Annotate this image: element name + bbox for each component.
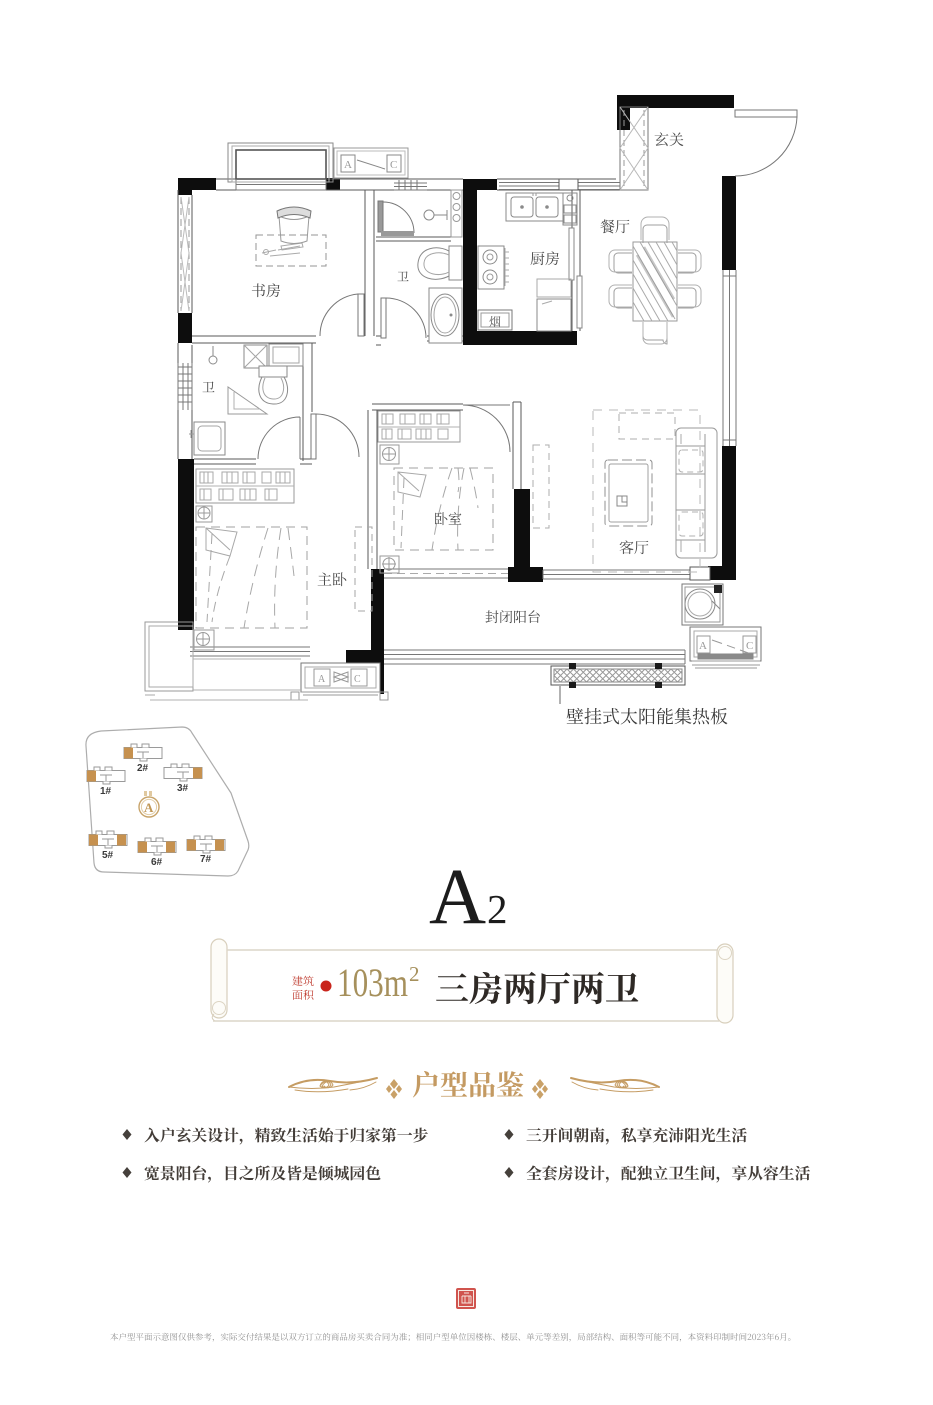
svg-text:A: A — [144, 800, 154, 815]
svg-text:2#: 2# — [137, 763, 149, 774]
svg-text:3#: 3# — [177, 783, 189, 794]
svg-text:5#: 5# — [102, 850, 114, 861]
svg-text:A: A — [344, 159, 352, 171]
svg-text:A: A — [318, 674, 326, 685]
svg-text:C: C — [746, 640, 753, 652]
svg-text:C: C — [354, 674, 361, 685]
svg-text:2: 2 — [409, 962, 420, 986]
svg-text:A: A — [429, 854, 486, 941]
svg-text:2: 2 — [487, 886, 508, 932]
svg-text:6#: 6# — [151, 857, 163, 868]
svg-text:7#: 7# — [200, 854, 212, 865]
svg-text:103m: 103m — [337, 960, 408, 1005]
svg-text:1#: 1# — [100, 786, 112, 797]
svg-text:A: A — [699, 640, 707, 652]
svg-text:C: C — [390, 159, 397, 171]
